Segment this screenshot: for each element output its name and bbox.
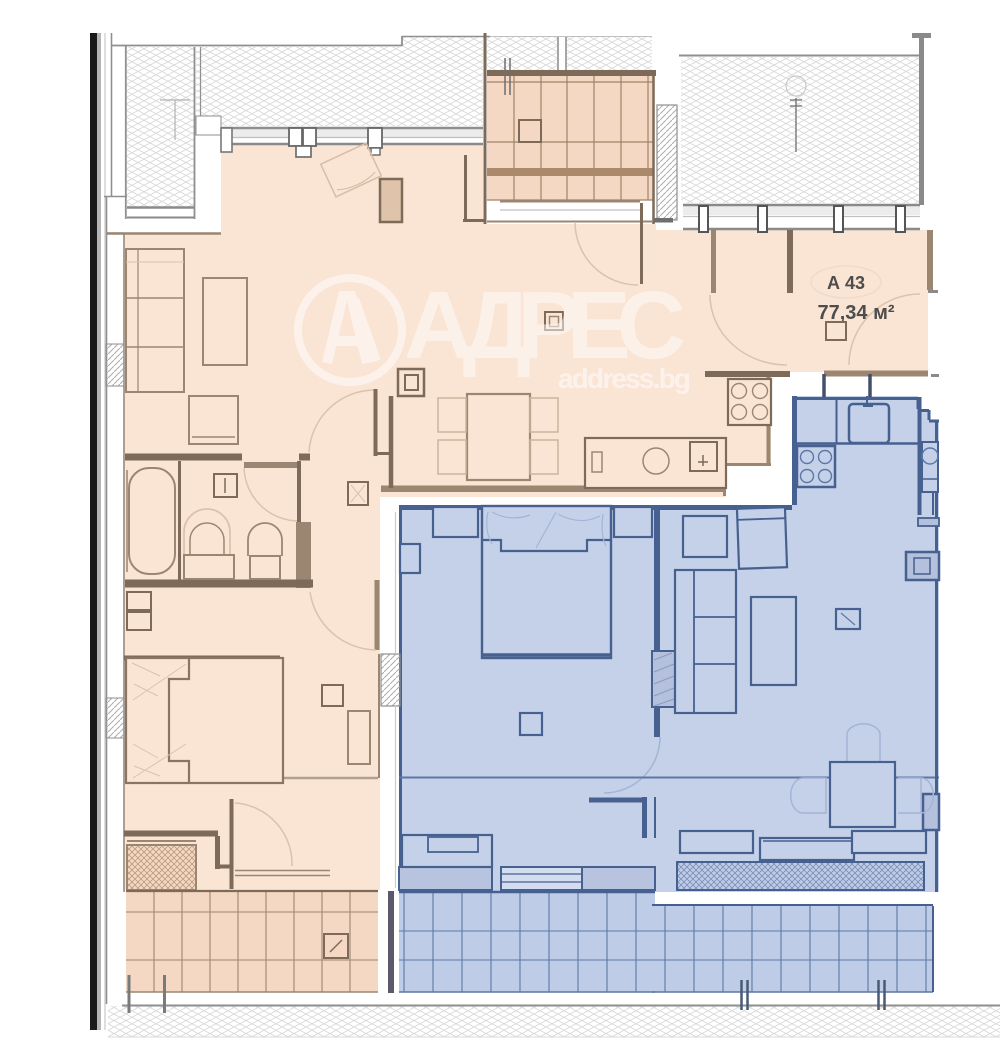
svg-text:А 43: А 43	[827, 273, 865, 293]
svg-text:address.bg: address.bg	[558, 363, 691, 394]
svg-text:77,34 м²: 77,34 м²	[817, 302, 894, 324]
